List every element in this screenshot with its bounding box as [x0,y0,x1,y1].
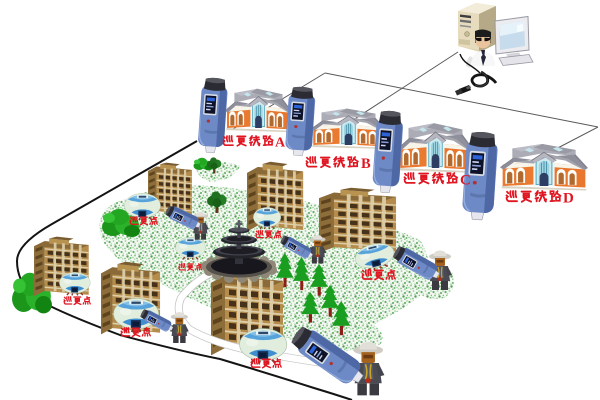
svg-text:C: C [460,173,471,189]
svg-text:A: A [275,136,286,151]
svg-text:B: B [361,156,371,172]
svg-text:D: D [563,191,574,207]
